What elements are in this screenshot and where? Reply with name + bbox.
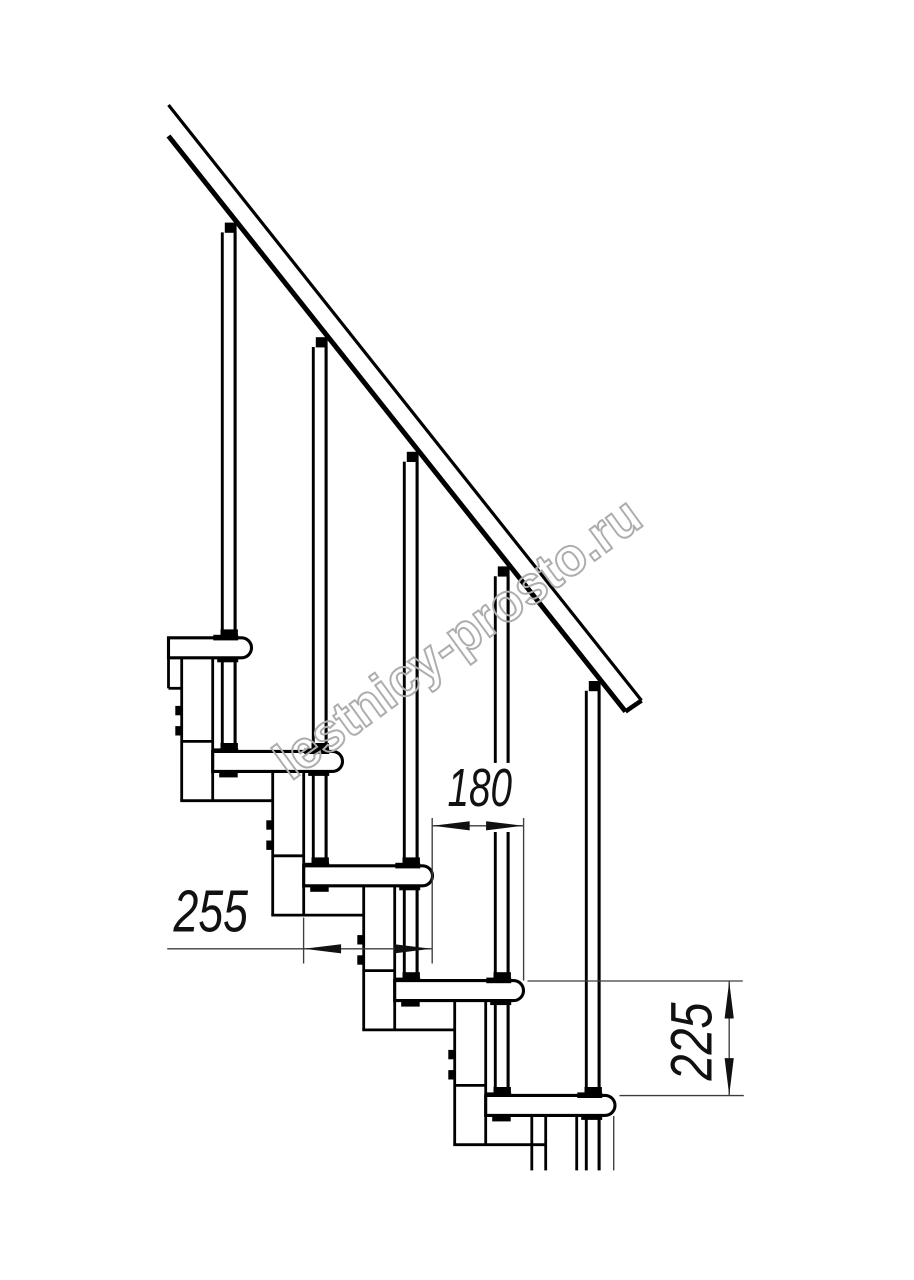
svg-text:225: 225 [660,1002,725,1081]
svg-text:255: 255 [173,879,248,945]
svg-text:180: 180 [448,758,513,818]
